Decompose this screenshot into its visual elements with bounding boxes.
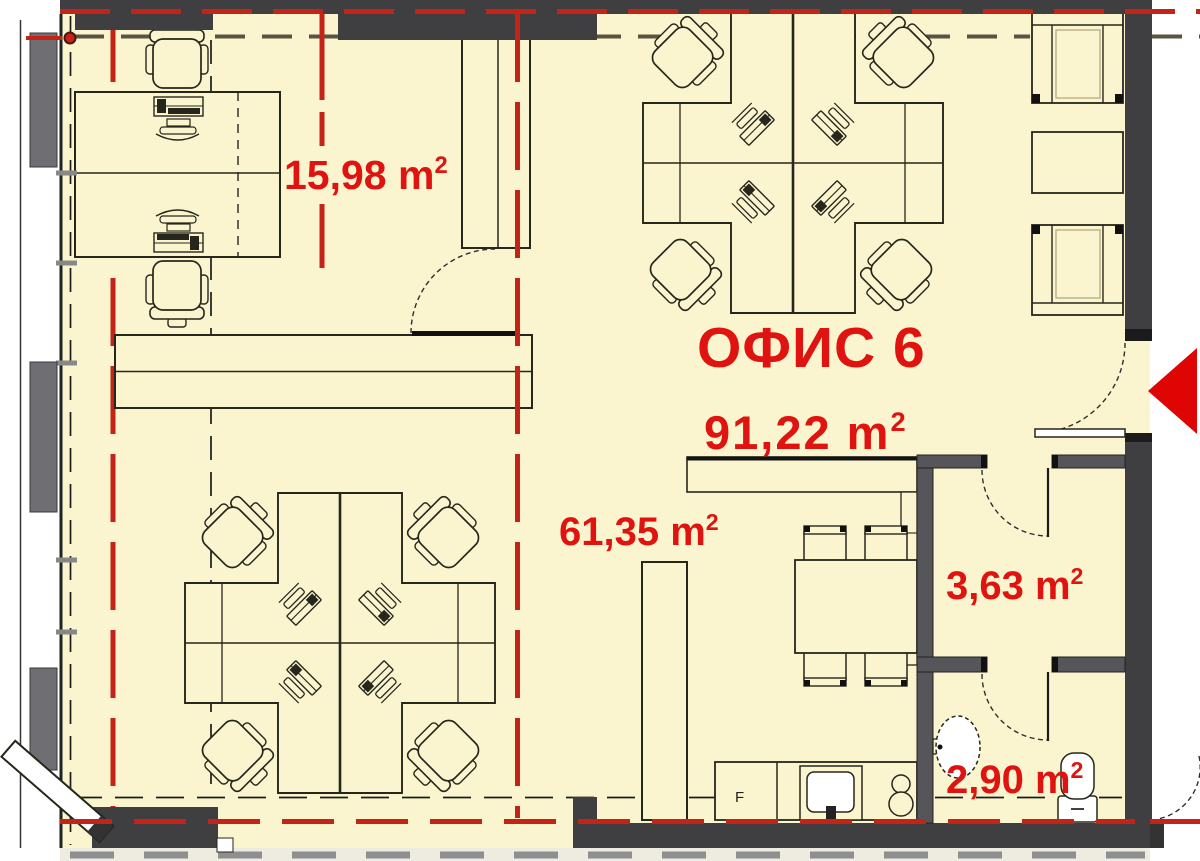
armchair: [1032, 13, 1123, 103]
waiting-area: [1032, 13, 1123, 315]
area-label-wc: 2,90 m2: [946, 757, 1083, 802]
kitchen-sink: [800, 766, 862, 820]
kitchen-counter: F: [715, 762, 917, 820]
pillar: [30, 362, 57, 512]
right-wall-upper: [1125, 0, 1152, 337]
cooktop: [889, 775, 913, 816]
area-label-open-space: 61,35 m2: [559, 509, 719, 554]
sideboard-counter: [115, 334, 532, 409]
right-wall-lower: [1125, 433, 1152, 848]
area-label-meeting-room: 15,98 m2: [284, 152, 448, 198]
floor-plan: F: [0, 0, 1200, 861]
shelf-counter: [687, 457, 917, 492]
armchair: [1032, 225, 1123, 315]
tall-cabinet: [642, 562, 687, 820]
fridge-label: F: [735, 789, 744, 806]
dining-table: [795, 560, 917, 653]
coffee-table: [1032, 132, 1123, 193]
pillar: [30, 668, 57, 770]
bottom-wall: [573, 823, 1150, 848]
pillar: [30, 33, 57, 167]
office-area-label: 91,22 m2: [704, 406, 908, 459]
desk-cluster-top: [641, 6, 943, 321]
office-title-label: ОФИС 6: [697, 316, 926, 380]
floor-plan-canvas: F: [0, 0, 1200, 861]
area-label-storage: 3,63 m2: [946, 563, 1083, 608]
desk-cluster-bottom: [185, 486, 495, 802]
